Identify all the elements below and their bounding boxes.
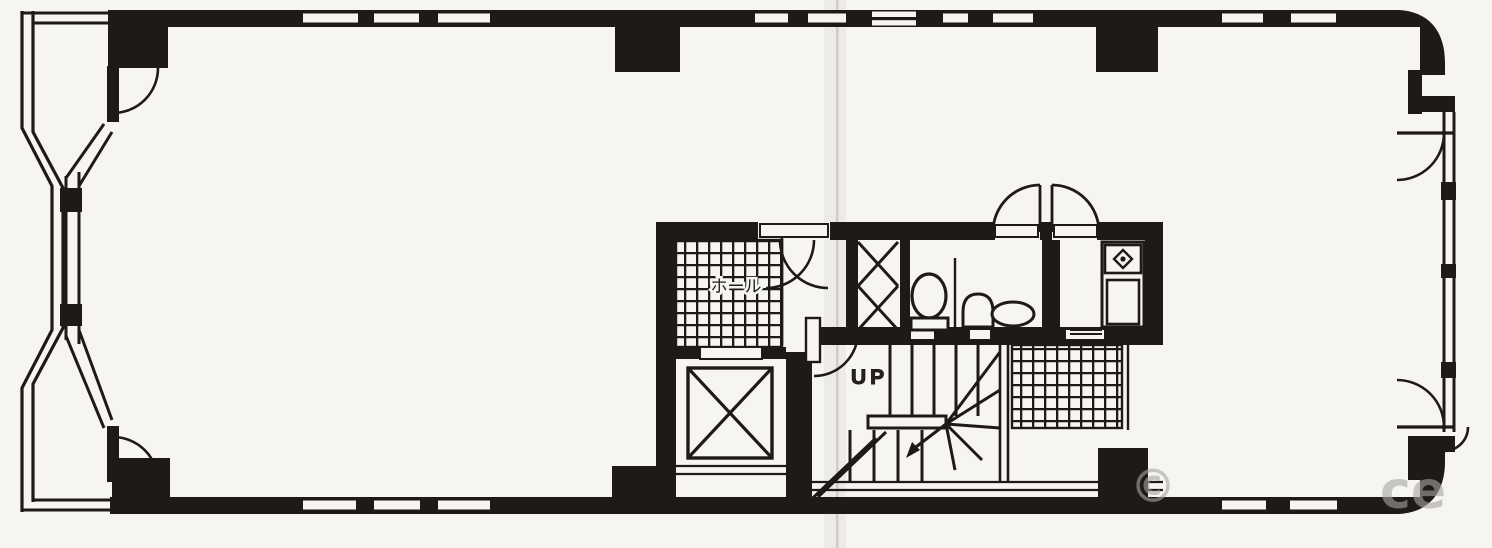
mullion-block (1441, 182, 1456, 200)
door-sill (995, 225, 1038, 237)
handrail (868, 416, 946, 428)
urinal (963, 294, 993, 327)
toilet-tank (911, 318, 948, 330)
mullion-block (1441, 362, 1456, 378)
hall-label: ホール (711, 277, 762, 297)
scan-fold-line (824, 0, 846, 548)
column-top-middle (615, 12, 680, 72)
elevator-door (700, 347, 762, 359)
elevator-hall: ホール (676, 237, 782, 347)
toilet-bowl (912, 274, 946, 318)
door-sill (760, 224, 828, 237)
mullion-block (60, 188, 82, 212)
bottom-wall (110, 497, 1392, 514)
door-sill (1054, 225, 1097, 237)
wash-basin (992, 302, 1034, 326)
floor-plan-drawing: ホール (0, 0, 1492, 548)
column-bottom-left (112, 458, 170, 514)
counter-lower-box (1107, 280, 1139, 324)
top-wall (108, 10, 1392, 27)
tiled-landing (1012, 345, 1128, 430)
floor-plan-sheet: ホール (0, 0, 1492, 548)
mullion-block (1441, 264, 1456, 278)
door-leaf (107, 426, 119, 482)
door-leaf (806, 318, 820, 362)
tiled-floor (1012, 345, 1122, 428)
watermark-text: ce (1380, 461, 1446, 521)
stairs-up-label: UP (851, 366, 888, 389)
column-top-right (1096, 12, 1158, 72)
column-top-left (108, 12, 168, 68)
mullion-block (60, 304, 82, 326)
watermark-copyright: © (1130, 459, 1176, 513)
